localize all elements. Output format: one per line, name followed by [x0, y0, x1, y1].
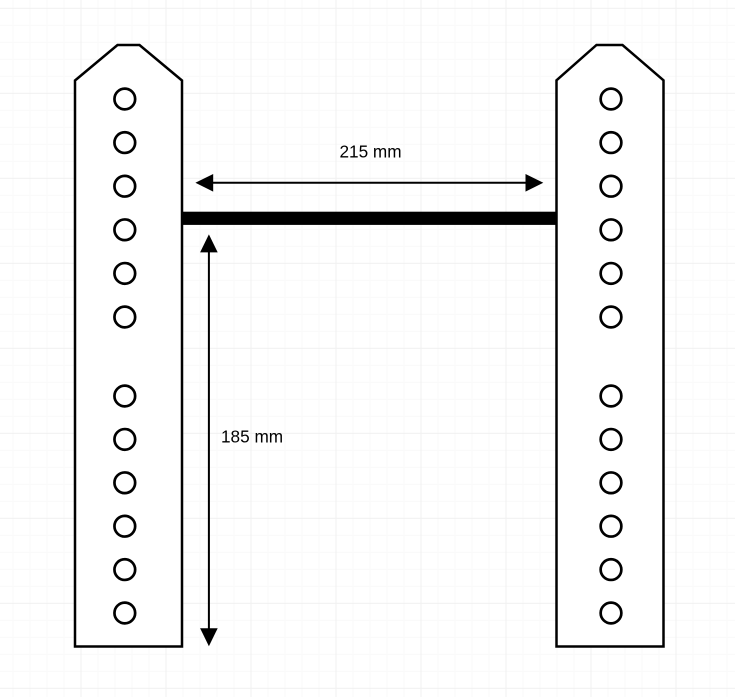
svg-text:185 mm: 185 mm: [221, 427, 283, 447]
svg-text:215 mm: 215 mm: [339, 141, 401, 161]
